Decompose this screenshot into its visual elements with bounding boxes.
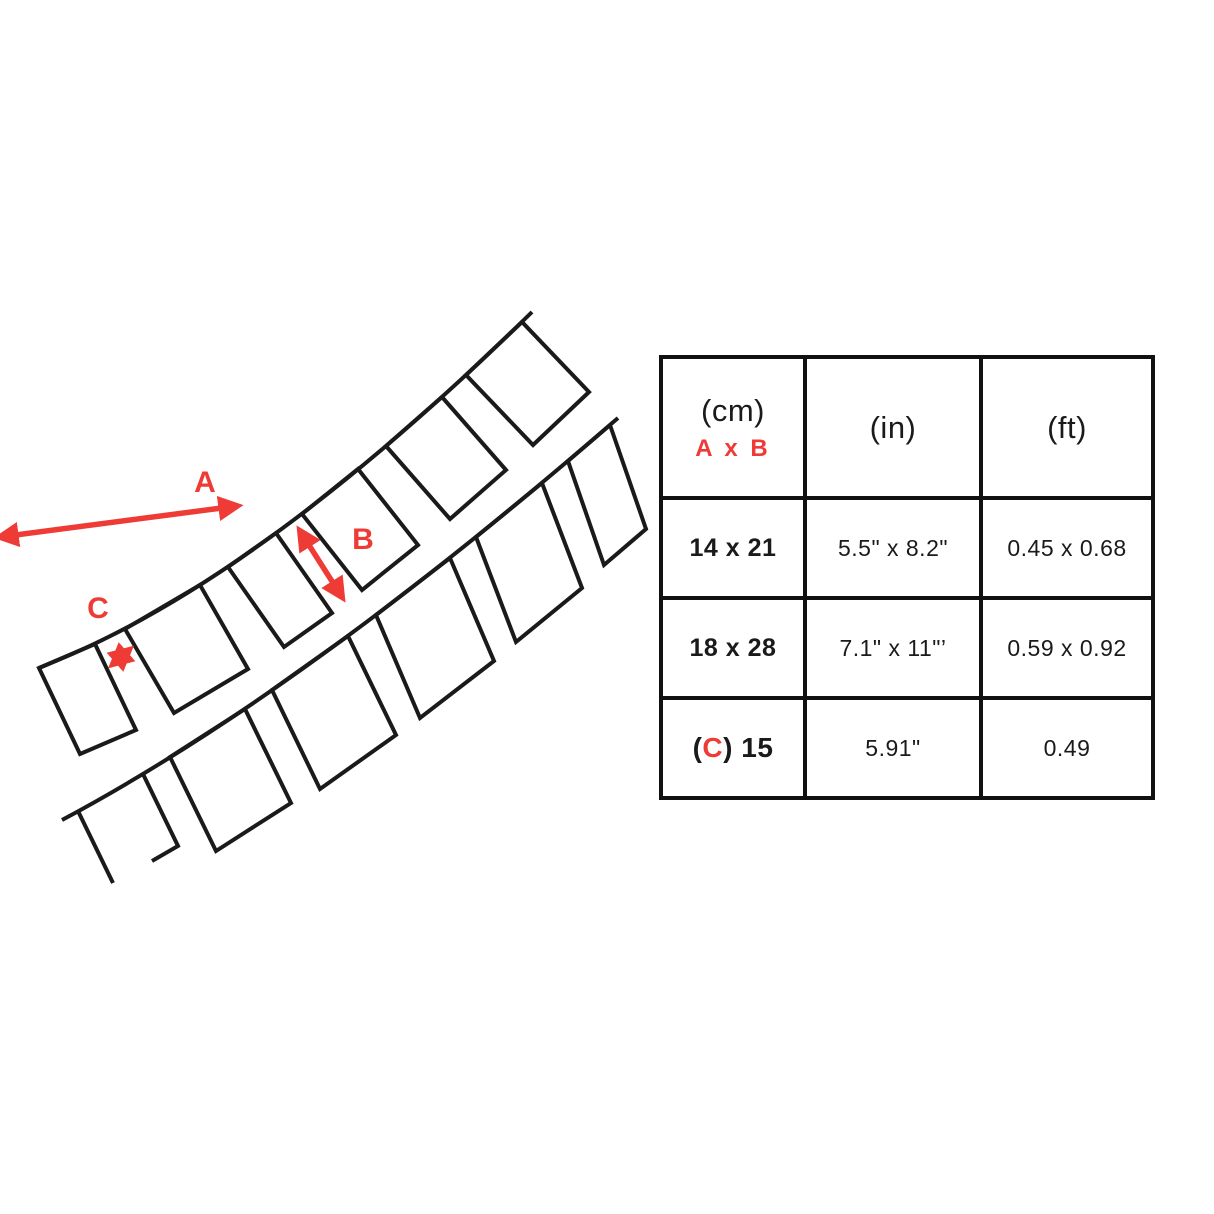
flag bbox=[170, 709, 291, 851]
label-b: B bbox=[352, 523, 374, 556]
in-unit-label: (in) bbox=[870, 410, 917, 446]
label-a: A bbox=[194, 466, 216, 499]
page: A B C (cm) A x B (in) (ft) 14 x 21 5.5" … bbox=[0, 0, 1214, 1214]
row3-in-value: 5.91" bbox=[865, 735, 920, 762]
row2-ft-value: 0.59 x 0.92 bbox=[1007, 635, 1126, 662]
arrow-c bbox=[113, 650, 129, 664]
top-garland-rope bbox=[39, 312, 532, 668]
row2-ft: 0.59 x 0.92 bbox=[983, 600, 1151, 696]
row3-paren-close: ) 15 bbox=[723, 732, 773, 764]
flag-cropped bbox=[78, 774, 178, 883]
row1-cm: 14 x 21 bbox=[663, 500, 803, 596]
size-table: (cm) A x B (in) (ft) 14 x 21 5.5" x 8.2"… bbox=[659, 355, 1155, 800]
row3-ft-value: 0.49 bbox=[1044, 735, 1091, 762]
top-garland-flags bbox=[39, 322, 589, 754]
row2-cm-value: 18 x 28 bbox=[690, 634, 777, 663]
header-cell-cm: (cm) A x B bbox=[663, 359, 803, 496]
row1-in-value: 5.5" x 8.2" bbox=[838, 535, 948, 562]
row3-in: 5.91" bbox=[807, 700, 979, 796]
lower-garland-flags bbox=[78, 425, 646, 883]
row1-ft-value: 0.45 x 0.68 bbox=[1007, 535, 1126, 562]
flag bbox=[228, 533, 332, 647]
header-cell-ft: (ft) bbox=[983, 359, 1151, 496]
flag bbox=[125, 585, 248, 713]
row1-cm-value: 14 x 21 bbox=[690, 534, 777, 563]
row2-in: 7.1" x 11"’ bbox=[807, 600, 979, 696]
row3-ft: 0.49 bbox=[983, 700, 1151, 796]
flag bbox=[386, 397, 506, 519]
row1-in: 5.5" x 8.2" bbox=[807, 500, 979, 596]
flag bbox=[568, 425, 646, 565]
flag bbox=[39, 644, 136, 754]
label-c: C bbox=[87, 592, 109, 625]
cm-unit-label: (cm) bbox=[701, 393, 765, 429]
axb-label: A x B bbox=[695, 435, 770, 463]
arrow-a bbox=[0, 506, 237, 537]
flag bbox=[466, 322, 589, 445]
row3-paren-open: ( bbox=[693, 732, 703, 764]
row3-cm: (C) 15 bbox=[663, 700, 803, 796]
row3-c-label: C bbox=[702, 732, 723, 764]
flag bbox=[272, 636, 396, 789]
header-cell-in: (in) bbox=[807, 359, 979, 496]
row2-in-value: 7.1" x 11"’ bbox=[839, 635, 946, 662]
row1-ft: 0.45 x 0.68 bbox=[983, 500, 1151, 596]
row2-cm: 18 x 28 bbox=[663, 600, 803, 696]
flag bbox=[476, 483, 582, 642]
flag bbox=[376, 558, 494, 718]
ft-unit-label: (ft) bbox=[1047, 410, 1087, 446]
